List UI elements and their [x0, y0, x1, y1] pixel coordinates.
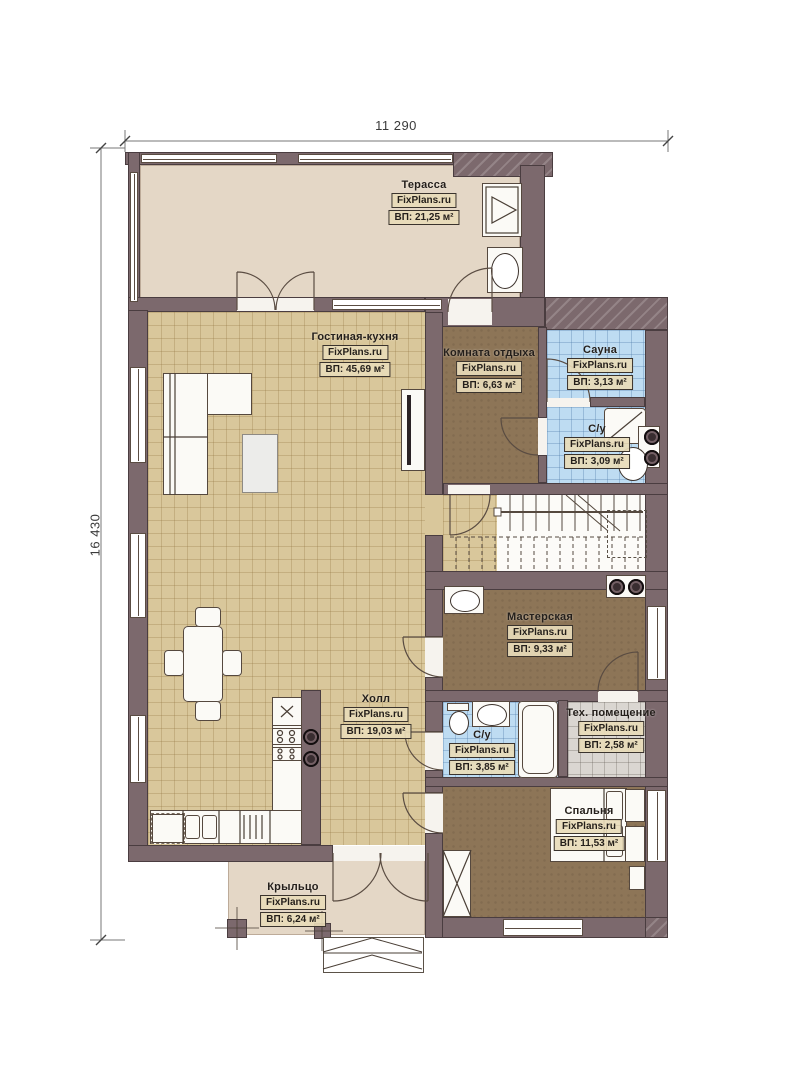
terrace-glazing — [130, 172, 138, 302]
room-label-wc1: С/у FixPlans.ru ВП: 3,09 м² — [564, 423, 630, 469]
stair-landing-dashed — [607, 510, 647, 558]
coffee-table — [242, 434, 278, 493]
wardrobe — [443, 850, 471, 917]
room-name: Гостиная-кухня — [311, 331, 398, 343]
door-opening-terrace-french — [237, 298, 314, 311]
brand-watermark: FixPlans.ru — [322, 345, 388, 360]
room-label-terrace: Терасса FixPlans.ru ВП: 21,25 м² — [388, 179, 459, 225]
room-label-porch: Крыльцо FixPlans.ru ВП: 6,24 м² — [260, 881, 326, 927]
room-name: Комната отдыха — [443, 347, 535, 359]
room-label-workshop: Мастерская FixPlans.ru ВП: 9,33 м² — [507, 611, 573, 657]
kitchen-base-cabinet — [151, 813, 185, 844]
door-opening-tech — [598, 691, 638, 702]
flue-circle-kitchen-2 — [303, 751, 319, 767]
window-workshop — [647, 606, 666, 680]
room-label-tech: Тех. помещение FixPlans.ru ВП: 2,58 м² — [566, 707, 656, 753]
tv-screen — [407, 395, 411, 465]
sofa-side-section — [163, 373, 208, 495]
room-name: Сауна — [567, 344, 633, 356]
door-opening-terrace-side — [448, 299, 492, 325]
nightstand-1 — [625, 789, 645, 822]
door-opening-sauna — [547, 398, 590, 407]
brand-watermark: FixPlans.ru — [260, 895, 326, 910]
toilet-wc2-tank — [447, 703, 469, 711]
wall-spine-a — [425, 312, 443, 495]
window-terrace-top-2 — [298, 154, 453, 163]
brand-watermark: FixPlans.ru — [556, 819, 622, 834]
dining-chair-bottom — [195, 701, 221, 721]
dimension-width: 11 290 — [375, 118, 417, 133]
wall-bottom-left — [128, 845, 333, 862]
brand-watermark: FixPlans.ru — [391, 193, 457, 208]
room-name: Терасса — [388, 179, 459, 191]
brand-watermark: FixPlans.ru — [564, 437, 630, 452]
workshop-sink-basin — [450, 590, 480, 612]
nightstand-2 — [625, 826, 645, 862]
wall-kitchen-stub — [301, 690, 321, 845]
room-area: ВП: 11,53 м² — [554, 836, 625, 851]
wall-rightwing-top — [545, 297, 668, 330]
room-area: ВП: 45,69 м² — [319, 362, 390, 377]
brand-watermark: FixPlans.ru — [456, 361, 522, 376]
window-left-3 — [130, 715, 146, 783]
floor-stair-corridor — [443, 495, 497, 573]
porch-post-left — [227, 919, 247, 938]
dining-chair-top — [195, 607, 221, 627]
opening-hall-corridor — [425, 495, 443, 535]
door-opening-porch — [333, 846, 425, 861]
bathtub-inner — [522, 705, 554, 774]
window-terrace-top-1 — [141, 154, 277, 163]
window-bedroom — [647, 790, 666, 862]
room-name: Холл — [340, 693, 411, 705]
room-area: ВП: 6,24 м² — [260, 912, 326, 927]
tv-console — [401, 389, 425, 471]
window-kitchen-top — [332, 299, 442, 310]
terrace-sink-basin — [491, 253, 519, 289]
door-opening-restroom — [538, 418, 547, 455]
door-opening-stairhall — [448, 485, 490, 494]
room-name: Тех. помещение — [566, 707, 656, 719]
room-area: ВП: 3,13 м² — [567, 375, 633, 390]
wall-sauna-bottom — [590, 397, 645, 407]
wall-corner-hatch — [645, 917, 668, 938]
kitchen-sink-bowl-1 — [185, 815, 200, 839]
room-label-bedroom: Спальня FixPlans.ru ВП: 11,53 м² — [554, 805, 625, 851]
room-label-sauna: Сауна FixPlans.ru ВП: 3,13 м² — [567, 344, 633, 390]
stove-circle-1 — [609, 579, 625, 595]
room-area: ВП: 2,58 м² — [578, 738, 644, 753]
window-bottom — [503, 919, 583, 936]
floor-plan-canvas: Терасса FixPlans.ru ВП: 21,25 м² Гостина… — [0, 0, 792, 1080]
door-opening-workshop — [425, 637, 443, 677]
dining-chair-right — [222, 650, 242, 676]
brand-watermark: FixPlans.ru — [343, 707, 409, 722]
wall-rest-sauna-a — [538, 327, 547, 418]
room-area: ВП: 9,33 м² — [507, 642, 573, 657]
room-label-rest: Комната отдыха FixPlans.ru ВП: 6,63 м² — [443, 347, 535, 393]
window-left-1 — [130, 367, 146, 463]
kitchen-sink-bowl-2 — [202, 815, 217, 839]
dining-table — [183, 626, 223, 702]
room-name: Спальня — [554, 805, 625, 817]
bathtub — [518, 701, 558, 778]
room-area: ВП: 21,25 м² — [388, 210, 459, 225]
room-area: ВП: 3,85 м² — [449, 760, 515, 775]
room-name: С/у — [564, 423, 630, 435]
porch-steps — [323, 937, 424, 973]
flue-circle-wc1-1 — [644, 429, 660, 445]
room-label-wc2: С/у FixPlans.ru ВП: 3,85 м² — [449, 729, 515, 775]
oven-icon — [272, 747, 302, 761]
dimension-height: 16 430 — [88, 514, 103, 557]
brand-watermark: FixPlans.ru — [507, 625, 573, 640]
stove-circle-2 — [628, 579, 644, 595]
room-label-hall: Холл FixPlans.ru ВП: 19,03 м² — [340, 693, 411, 739]
room-name: Мастерская — [507, 611, 573, 623]
bbq-grill — [482, 183, 522, 237]
wall-terrace-right — [520, 165, 545, 312]
wall-spine-c — [425, 677, 443, 732]
room-area: ВП: 3,09 м² — [564, 454, 630, 469]
wall-spine-e — [425, 833, 443, 938]
room-name: Крыльцо — [260, 881, 326, 893]
wall-rest-sauna-b — [538, 455, 547, 483]
flue-circle-kitchen-1 — [303, 729, 319, 745]
room-area: ВП: 6,63 м² — [456, 378, 522, 393]
hob-burners — [272, 728, 302, 745]
wall-bedroom-top — [425, 777, 668, 787]
window-left-2 — [130, 533, 146, 618]
flue-circle-wc1-2 — [644, 450, 660, 466]
bedroom-cabinet — [629, 866, 645, 890]
wc2-sink-basin — [477, 704, 507, 726]
fridge-icon — [272, 697, 302, 726]
dining-chair-left — [164, 650, 184, 676]
brand-watermark: FixPlans.ru — [449, 743, 515, 758]
room-area: ВП: 19,03 м² — [340, 724, 411, 739]
door-opening-bedroom — [425, 793, 443, 833]
brand-watermark: FixPlans.ru — [567, 358, 633, 373]
room-label-living: Гостиная-кухня FixPlans.ru ВП: 45,69 м² — [311, 331, 398, 377]
brand-watermark: FixPlans.ru — [578, 721, 644, 736]
floor-terrace — [140, 165, 520, 310]
door-opening-wc2 — [425, 732, 443, 770]
room-name: С/у — [449, 729, 515, 741]
